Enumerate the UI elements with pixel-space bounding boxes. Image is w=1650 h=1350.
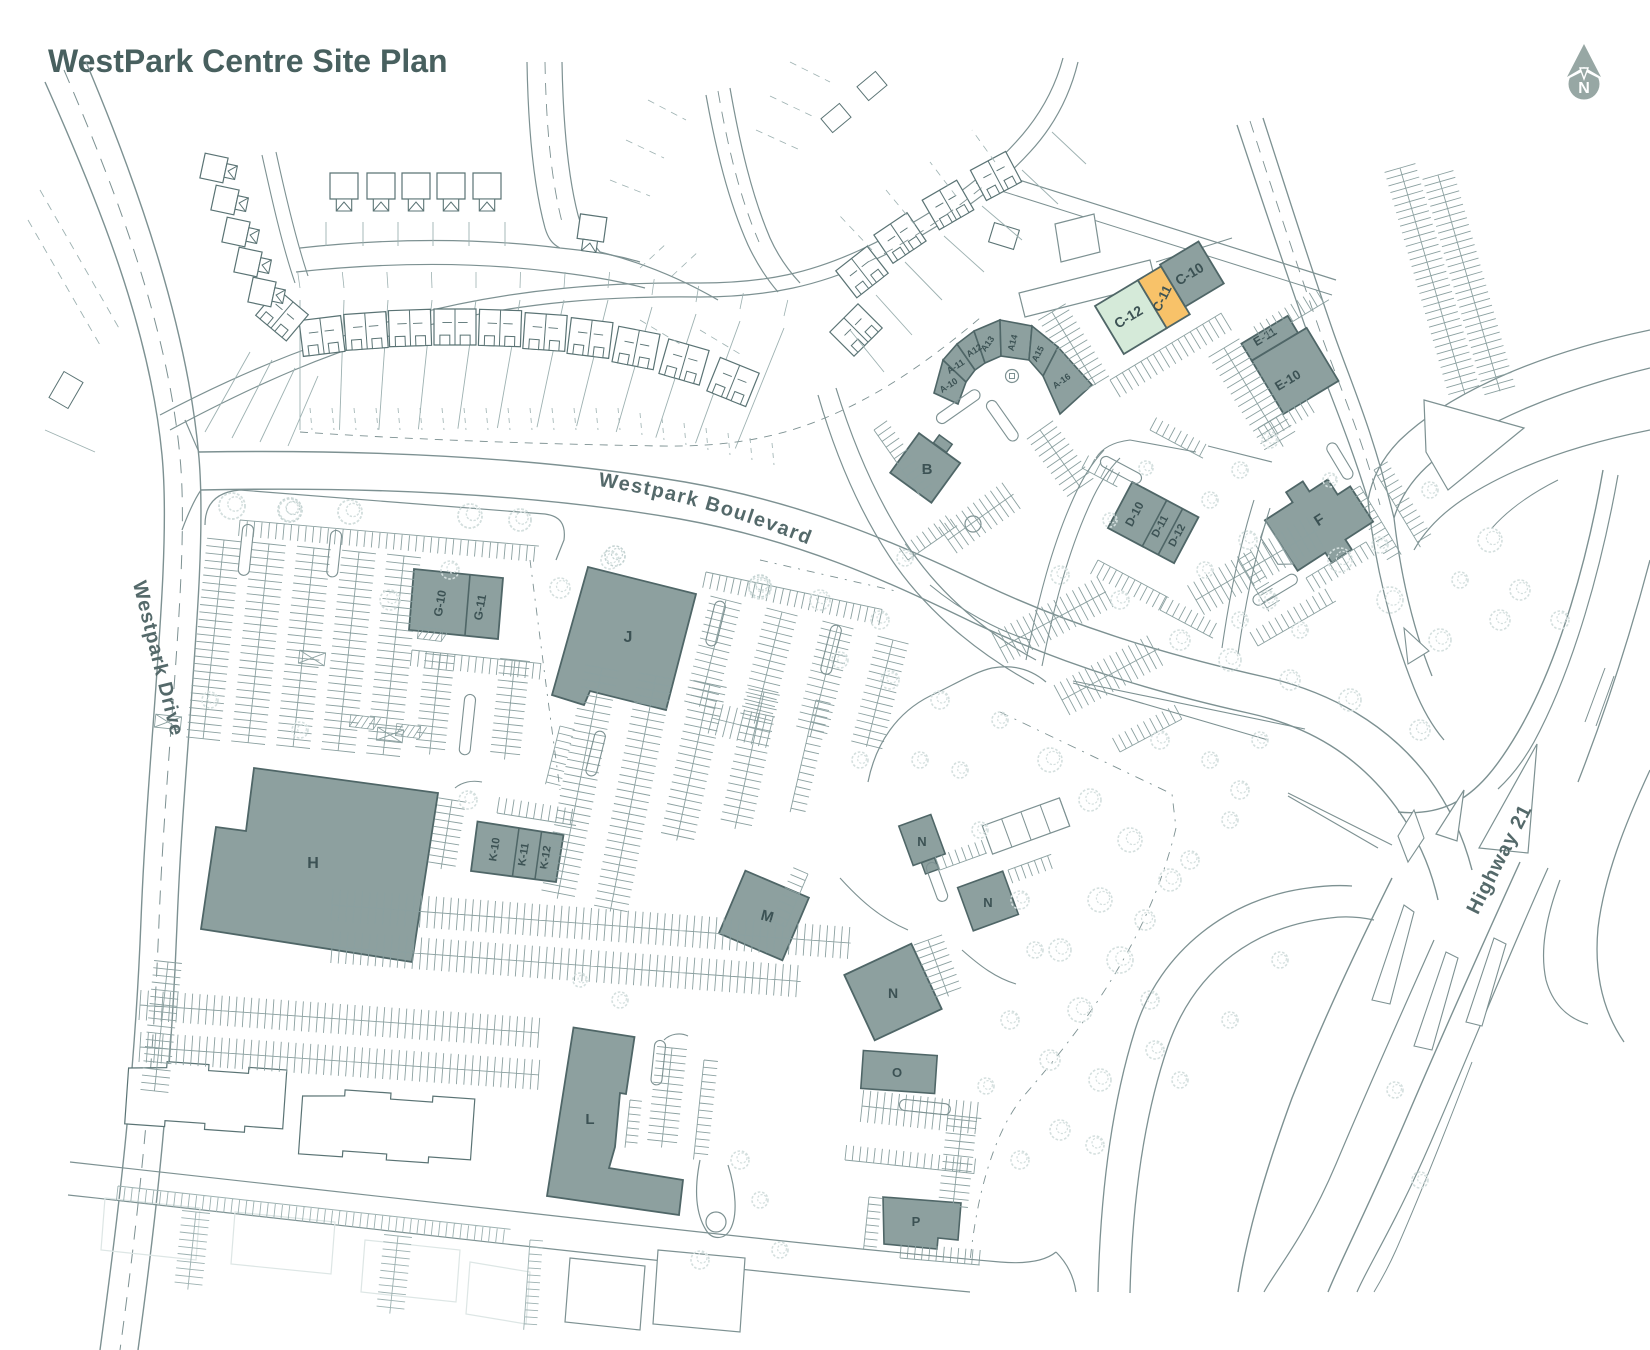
svg-text:N: N (1578, 80, 1590, 97)
svg-text:N: N (983, 895, 992, 910)
svg-text:H: H (307, 855, 319, 872)
svg-text:N: N (917, 834, 926, 849)
svg-text:O: O (892, 1065, 902, 1080)
svg-text:B: B (922, 461, 933, 478)
svg-text:J: J (624, 629, 633, 646)
svg-text:N: N (888, 985, 898, 1001)
svg-text:P: P (912, 1214, 921, 1229)
svg-text:L: L (585, 1111, 594, 1128)
svg-text:WestPark Centre Site Plan: WestPark Centre Site Plan (48, 43, 448, 79)
